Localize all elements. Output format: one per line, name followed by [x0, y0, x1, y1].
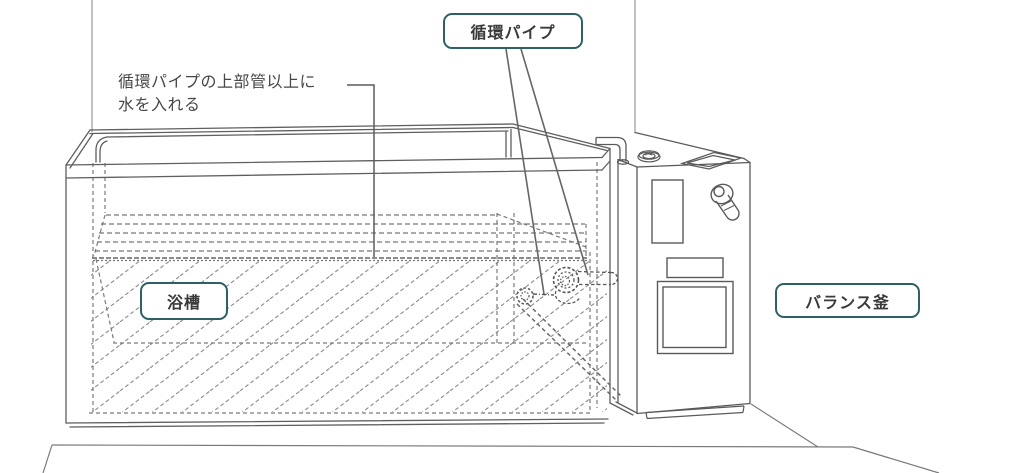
annotation-line-2: 水を入れる	[118, 94, 368, 117]
label-bathtub: 浴槽	[140, 282, 228, 320]
label-bathtub-text: 浴槽	[167, 289, 201, 313]
heater-outline	[618, 133, 750, 414]
label-circulation-pipe-text: 循環パイプ	[470, 19, 555, 43]
diagram-page: 循環パイプの上部管以上に 水を入れる 循環パイプ 浴槽 バランス釜	[0, 0, 1024, 473]
label-balance-boiler-text: バランス釜	[805, 289, 890, 313]
heater-pipe-elbow	[596, 138, 629, 165]
heater-panel-small	[667, 258, 723, 278]
label-circulation-pipe: 循環パイプ	[443, 13, 583, 49]
heater-top-cap	[638, 151, 660, 162]
heater-vent	[682, 153, 741, 170]
floor-lines	[43, 404, 939, 473]
water-level-annotation: 循環パイプの上部管以上に 水を入れる	[118, 71, 368, 117]
heater-panel-large	[658, 282, 734, 354]
pilot-window	[652, 180, 683, 243]
label-balance-boiler: バランス釜	[775, 283, 920, 318]
annotation-line-1: 循環パイプの上部管以上に	[118, 71, 368, 94]
gas-knob	[709, 182, 739, 220]
